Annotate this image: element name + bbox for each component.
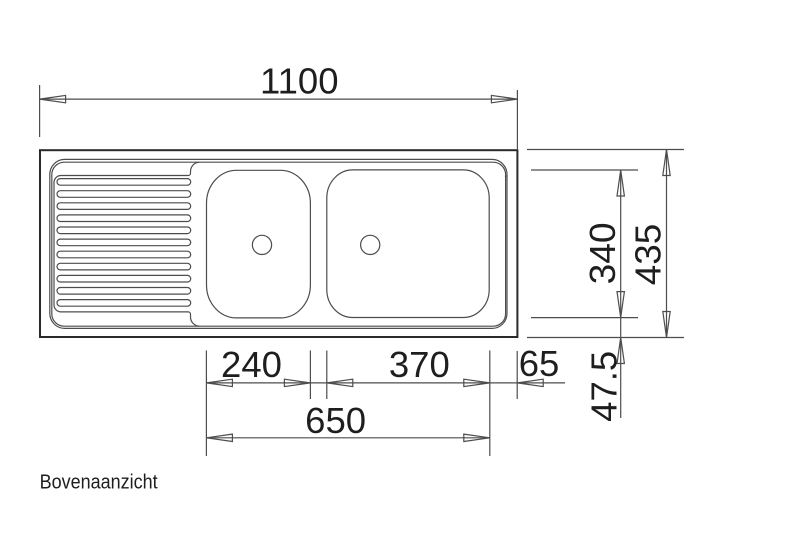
- svg-text:650: 650: [305, 400, 366, 441]
- svg-text:47.5: 47.5: [584, 351, 625, 422]
- svg-text:Bovenaanzicht: Bovenaanzicht: [40, 470, 158, 493]
- svg-text:435: 435: [627, 224, 668, 286]
- svg-text:240: 240: [221, 344, 282, 385]
- svg-text:340: 340: [582, 222, 623, 284]
- svg-text:370: 370: [389, 344, 450, 385]
- svg-text:1100: 1100: [260, 61, 339, 102]
- svg-text:65: 65: [519, 343, 560, 384]
